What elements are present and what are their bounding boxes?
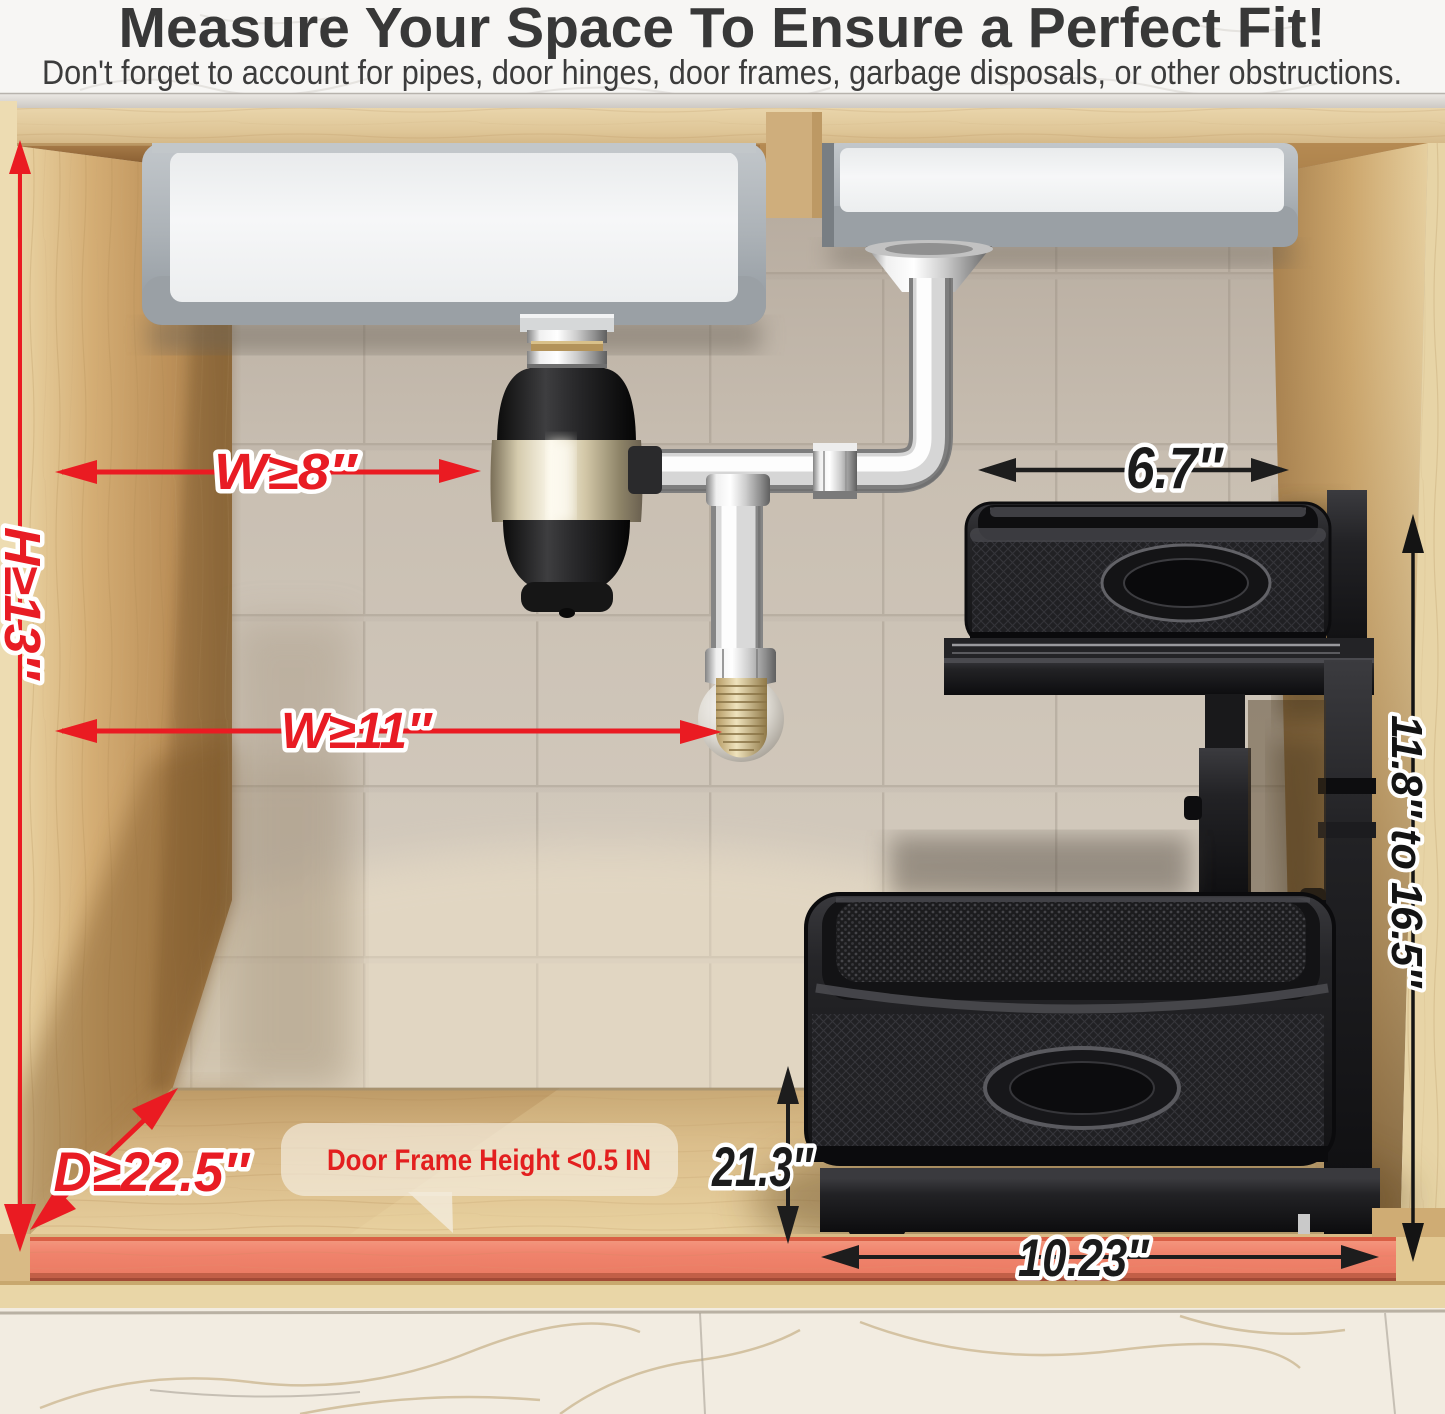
svg-text:W≥11″: W≥11″ bbox=[281, 702, 434, 759]
svg-text:10.23″: 10.23″ bbox=[1018, 1229, 1150, 1288]
svg-text:Door Frame Height <0.5 IN: Door Frame Height <0.5 IN bbox=[327, 1144, 651, 1177]
svg-text:11.8″ to 16.5″: 11.8″ to 16.5″ bbox=[1382, 715, 1431, 989]
svg-text:6.7″: 6.7″ bbox=[1126, 436, 1224, 501]
svg-text:H≥13″: H≥13″ bbox=[0, 527, 51, 682]
svg-text:Don't forget to account for pi: Don't forget to account for pipes, door … bbox=[42, 54, 1402, 92]
svg-text:21.3″: 21.3″ bbox=[711, 1135, 813, 1198]
svg-text:D≥22.5″: D≥22.5″ bbox=[54, 1140, 251, 1203]
svg-text:W≥8″: W≥8″ bbox=[214, 443, 359, 500]
svg-text:Measure Your Space To Ensure a: Measure Your Space To Ensure a Perfect F… bbox=[119, 0, 1326, 60]
